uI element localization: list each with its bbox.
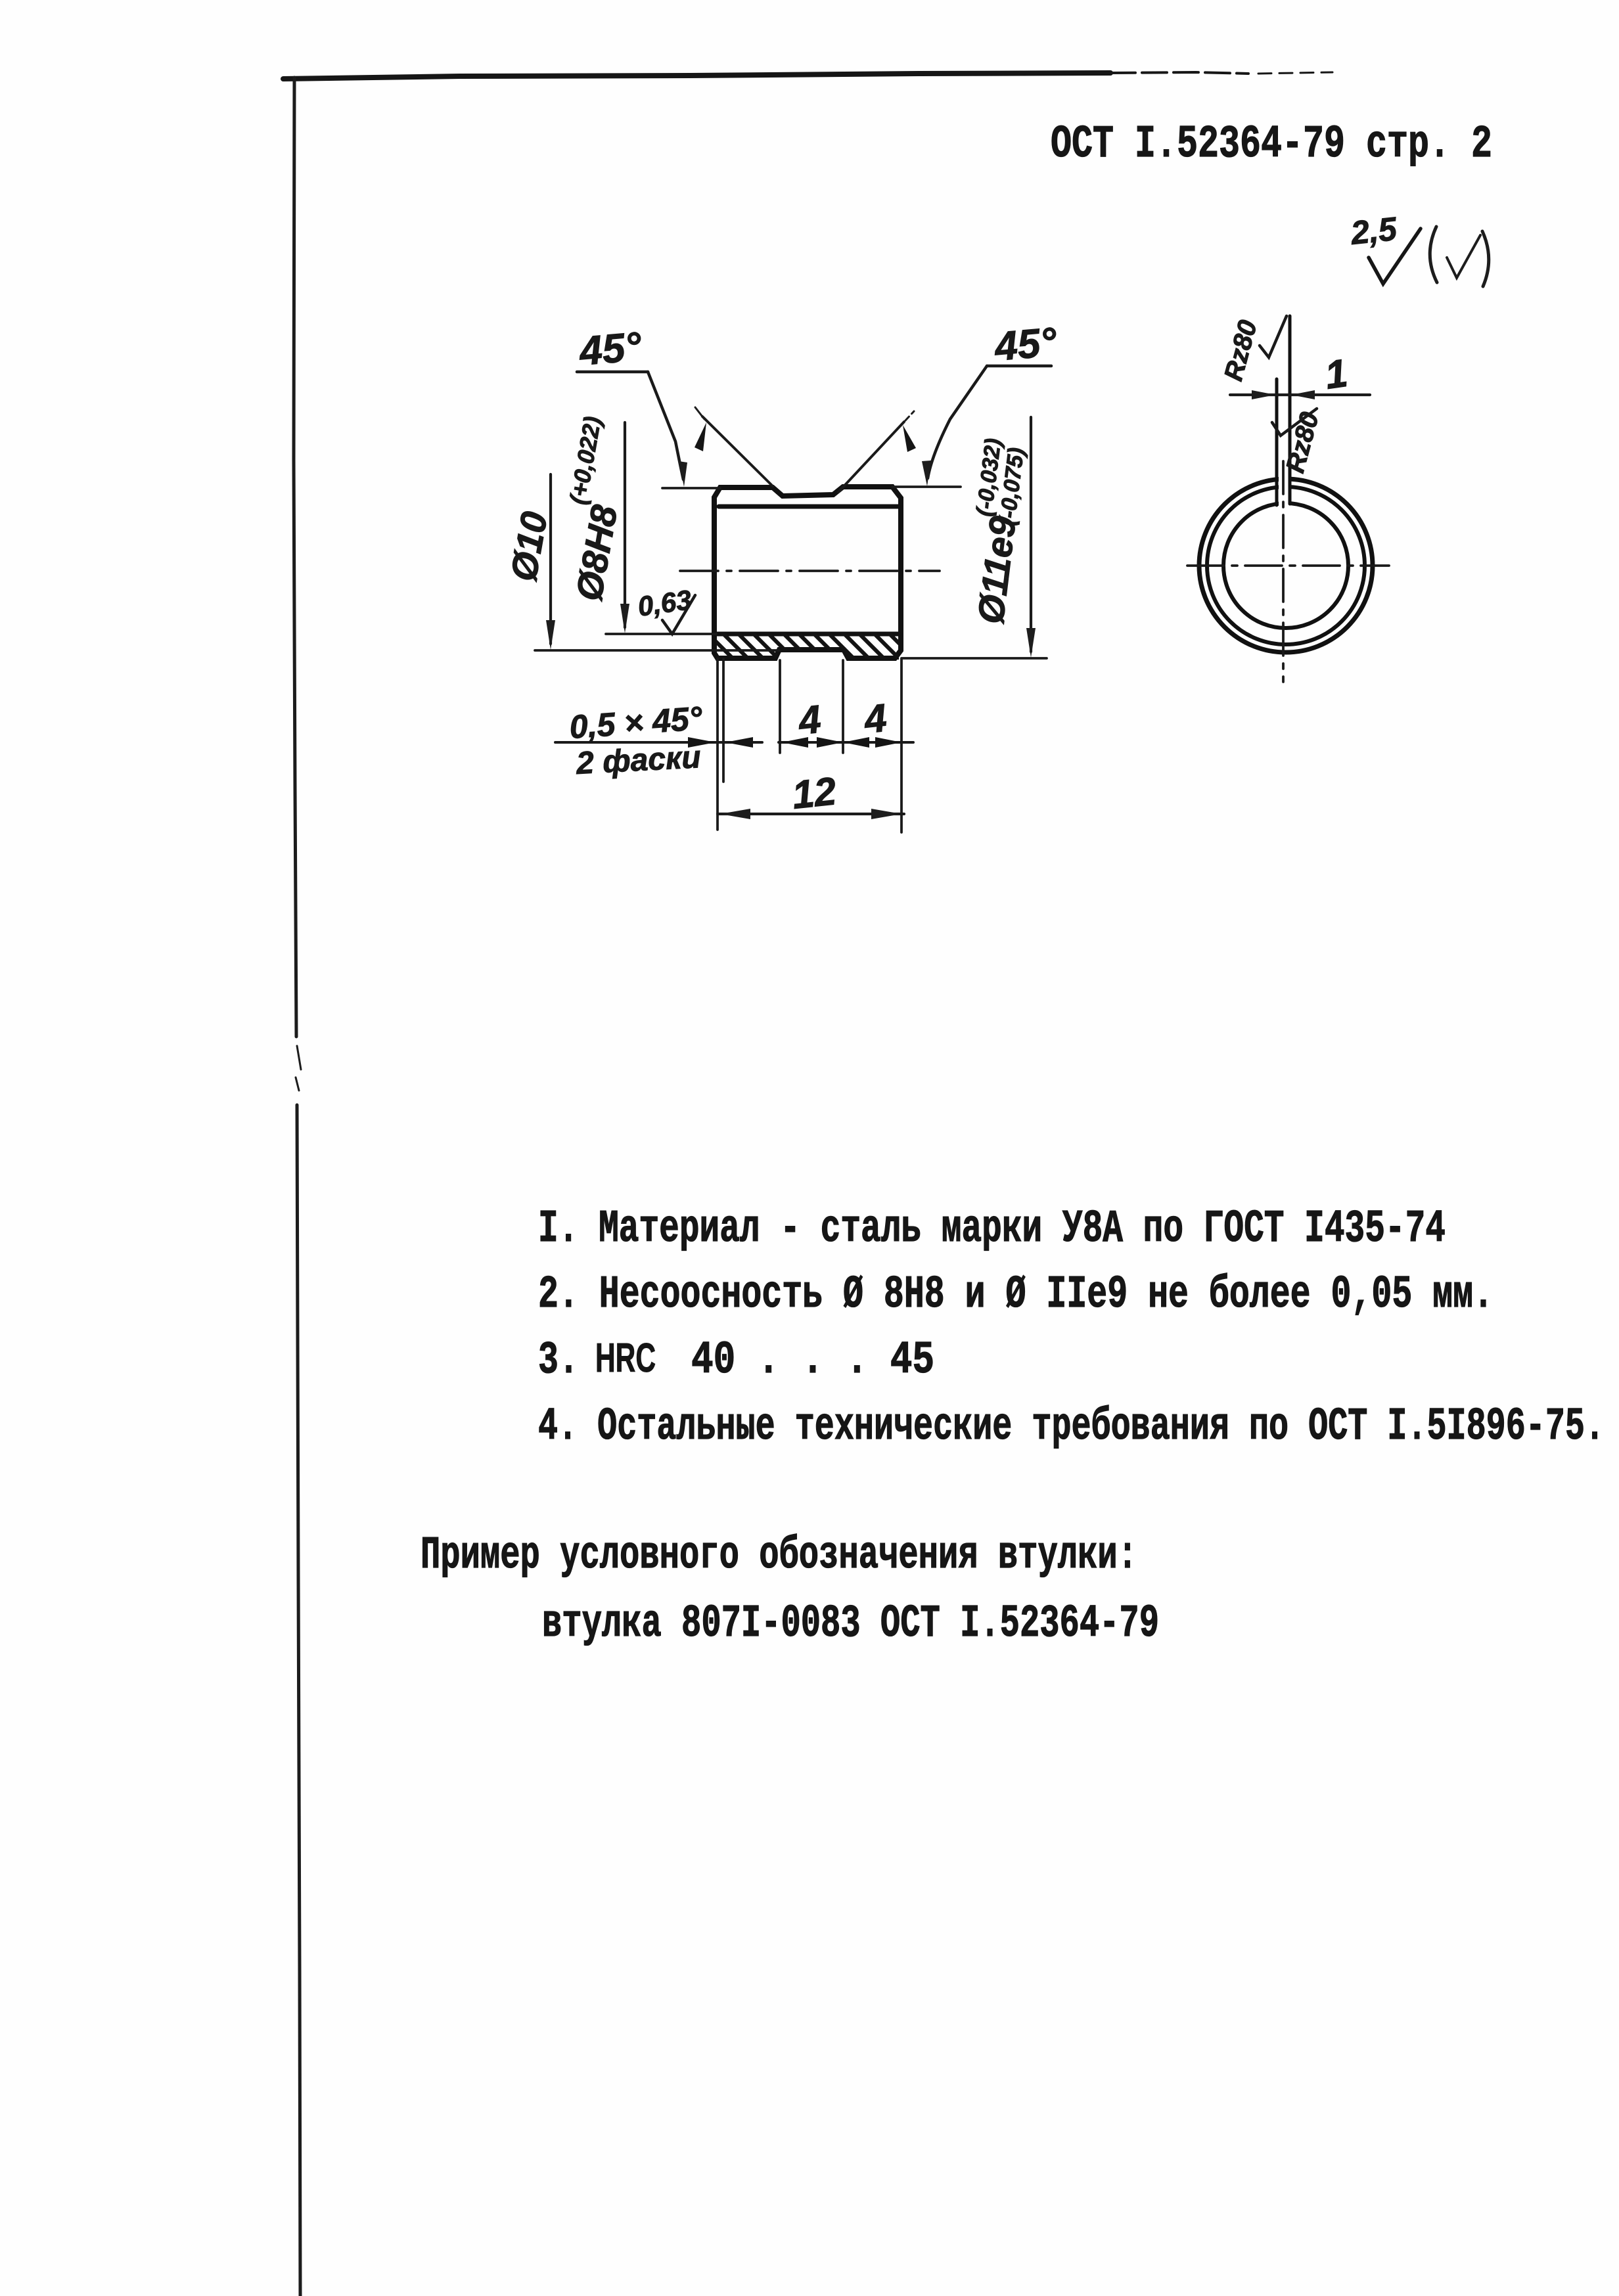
svg-text:Rz80: Rz80	[1219, 317, 1263, 384]
svg-text:Пример условного обозначения в: Пример условного обозначения втулки:	[421, 1530, 1137, 1582]
svg-text:1: 1	[1322, 351, 1350, 397]
svg-text:4: 4	[861, 696, 888, 742]
svg-text:Ø8Н8: Ø8Н8	[568, 501, 626, 604]
svg-text:Ø11е9: Ø11е9	[969, 514, 1024, 625]
svg-text:(+0,022): (+0,022)	[564, 415, 606, 506]
svg-text:I. Материал - сталь марки У8А: I. Материал - сталь марки У8А по ГОСТ I4…	[538, 1204, 1446, 1255]
svg-text:0,5 × 45°: 0,5 × 45°	[568, 700, 704, 746]
svg-text:2. Несоосность Ø 8Н8 и Ø IIе9: 2. Несоосность Ø 8Н8 и Ø IIе9 не более 0…	[538, 1269, 1494, 1321]
svg-text:втулка 807I-0083 ОСТ I.52364-7: втулка 807I-0083 ОСТ I.52364-79	[542, 1598, 1159, 1650]
svg-text:45°: 45°	[576, 324, 644, 374]
svg-text:0,63: 0,63	[636, 584, 693, 622]
svg-text:Ø10: Ø10	[503, 508, 555, 584]
svg-text:ОСТ I.52364-79 стр. 2: ОСТ I.52364-79 стр. 2	[1051, 119, 1492, 171]
svg-text:2,5: 2,5	[1348, 210, 1399, 252]
svg-text:HRC: HRC	[595, 1336, 656, 1381]
svg-text:4. Остальные технические требо: 4. Остальные технические требования по О…	[538, 1401, 1605, 1453]
svg-text:3.: 3.	[538, 1335, 579, 1387]
svg-text:4: 4	[796, 697, 823, 743]
svg-text:40 . . . 45: 40 . . . 45	[691, 1335, 934, 1387]
svg-text:2 фаски: 2 фаски	[575, 740, 702, 781]
svg-text:12: 12	[790, 769, 838, 817]
svg-text:45°: 45°	[992, 319, 1059, 370]
